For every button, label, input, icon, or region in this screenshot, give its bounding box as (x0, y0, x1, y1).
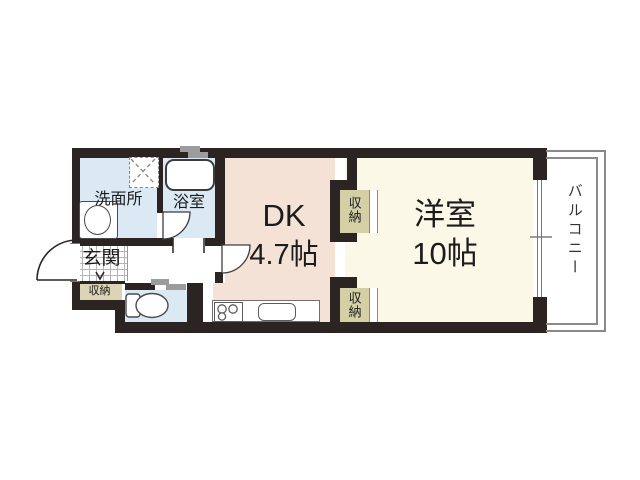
toilet-icon (126, 294, 168, 318)
western-room-name-label: 洋室 (357, 199, 533, 232)
doorway-jamb-ticks (173, 238, 204, 253)
western-room-size-label: 10帖 (357, 238, 533, 271)
stove-burners-icon (218, 305, 237, 320)
balcony-label: バルコニー (566, 183, 582, 278)
entrance-storage-label: 収納 (77, 286, 122, 298)
closet-upper-label: 収納 (347, 196, 361, 224)
entrance-door-swing-icon (37, 240, 77, 280)
washroom-label: 洗面所 (80, 192, 157, 209)
dk-size-label: 4.7帖 (215, 240, 353, 270)
bathroom-label: 浴室 (163, 195, 215, 212)
entrance-label: 玄関 (76, 249, 127, 269)
entrance-step-arrow-icon (96, 272, 104, 279)
closet-lower-label: 収納 (347, 291, 361, 319)
washing-machine-x-icon (131, 159, 155, 184)
floor-plan: 洗面所 浴室 DK 4.7帖 洋室 10帖 玄関 収納 収納 収納 バルコニー (0, 0, 640, 480)
bathroom-door-swing-icon (163, 212, 190, 239)
dk-name-label: DK (225, 200, 343, 233)
